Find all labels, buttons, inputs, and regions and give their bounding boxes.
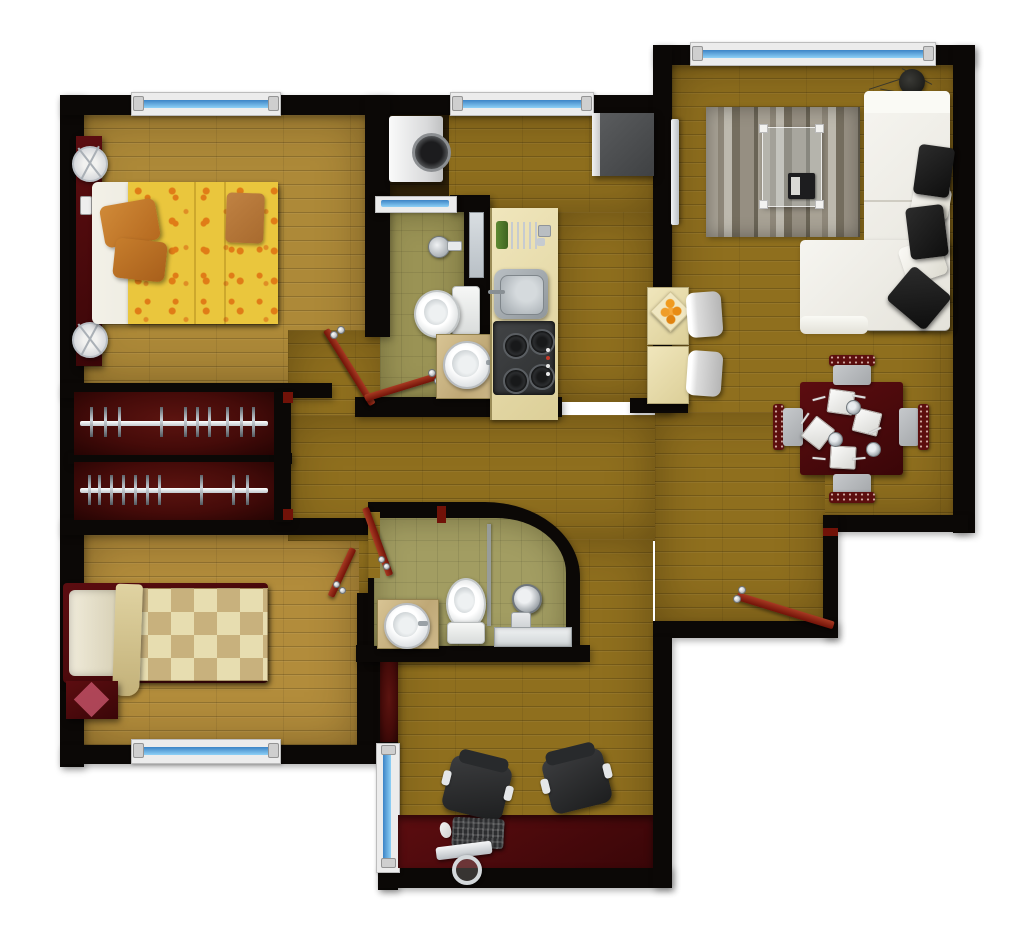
wall-office-right: [653, 637, 672, 888]
clothes-hanger: [88, 475, 91, 505]
window-bracket: [268, 96, 279, 111]
kitchen-east-floor: [556, 212, 653, 402]
stove-knob: [546, 348, 550, 352]
closet2-rail: [80, 488, 268, 493]
bathroom2-toilet-tank: [447, 622, 485, 644]
door-jamb: [283, 509, 293, 520]
clothes-hanger: [90, 407, 93, 437]
dining-chair-back: [918, 404, 929, 450]
drinking-glass: [866, 442, 881, 457]
floorplan-canvas: [0, 0, 1024, 926]
clothes-hanger: [110, 475, 113, 505]
refrigerator-edge: [592, 113, 600, 176]
clothes-hanger: [122, 475, 125, 505]
door-handle: [733, 595, 741, 603]
laundry-window-glass: [458, 100, 584, 108]
clothes-hanger: [98, 475, 101, 505]
wall-master-right: [365, 95, 390, 337]
bar-stool: [685, 350, 723, 397]
clothes-hanger: [232, 475, 235, 505]
second-bedroom-window-glass: [139, 747, 271, 755]
blanket-drape: [112, 584, 143, 697]
clothes-hanger: [146, 475, 149, 505]
clothes-hanger: [134, 475, 137, 505]
wall-closet-bottom: [60, 518, 380, 535]
clothes-hanger: [118, 407, 121, 437]
table-corner-pad: [815, 124, 824, 133]
toilet-bowl-inner: [424, 299, 448, 325]
clothes-hanger: [160, 407, 163, 437]
dining-chair-back: [829, 492, 875, 503]
stove-knob: [546, 372, 550, 376]
bathroom2-basin-inner: [393, 612, 418, 637]
wall-outer-right: [953, 45, 975, 533]
office-window-glass: [383, 751, 391, 864]
comforter-seam: [194, 182, 196, 324]
window-bracket: [133, 96, 144, 111]
dish-rack-plates: [511, 222, 537, 249]
clothes-hanger: [252, 407, 255, 437]
magazine-page: [791, 177, 800, 195]
dish-rack-cup: [538, 225, 551, 237]
wall-step-horizontal: [823, 515, 968, 532]
stove-burner: [529, 364, 555, 390]
window-bracket: [381, 858, 396, 868]
orange-pillow: [112, 237, 168, 282]
door-handle: [738, 586, 746, 594]
phone: [80, 196, 92, 215]
bar-stool: [685, 291, 723, 338]
wall-office-bottom: [378, 866, 672, 888]
sofa-armrest: [800, 316, 868, 334]
clothes-hanger: [158, 475, 161, 505]
window-bracket: [923, 46, 934, 61]
door-handle: [337, 326, 345, 334]
bedside-lamp: [72, 322, 108, 358]
window-bracket: [581, 96, 592, 111]
kitchen-faucet: [488, 290, 505, 294]
living-room-window-glass: [699, 50, 925, 58]
stove-burner: [529, 329, 555, 355]
black-cushion: [913, 144, 956, 199]
folded-blanket: [225, 192, 265, 243]
stove-knob: [546, 356, 550, 360]
bathroom1-mirror: [469, 212, 484, 278]
clothes-hanger: [208, 407, 211, 437]
clothes-hanger: [246, 475, 249, 505]
dish-rack-cup: [537, 238, 545, 246]
monitor-stand-base: [452, 855, 482, 885]
hand-shower-head: [512, 584, 542, 614]
shower-tray: [494, 627, 572, 647]
single-bed-checkered-comforter: [124, 588, 268, 681]
window-bracket: [268, 743, 279, 758]
dining-chair-seat: [833, 365, 871, 385]
door-jamb: [437, 506, 446, 523]
door-handle: [428, 369, 436, 377]
shower-arm: [447, 241, 462, 251]
black-cushion: [905, 204, 949, 260]
window-bracket: [133, 743, 144, 758]
bathroom1-basin-inner: [452, 350, 479, 377]
door-jamb: [283, 392, 293, 403]
table-corner-pad: [759, 200, 768, 209]
bar-table: [647, 346, 689, 404]
office-left-red-panel: [380, 662, 398, 742]
office-desk: [398, 815, 653, 868]
door-handle: [333, 581, 340, 588]
clothes-hanger: [200, 475, 203, 505]
wall-entry-bottom: [653, 621, 838, 638]
dining-chair-seat: [783, 408, 803, 446]
dining-chair-seat: [833, 474, 871, 494]
door-jamb: [823, 528, 838, 536]
master-bedroom-window-glass: [139, 100, 271, 108]
stove-burner: [503, 368, 529, 394]
window-bracket: [692, 46, 703, 61]
sofa-backrest-top: [864, 91, 950, 113]
stove-burner: [503, 333, 529, 359]
window-bracket: [381, 745, 396, 755]
table-corner-pad: [815, 200, 824, 209]
bathroom2-toilet-inner: [454, 587, 475, 613]
clothes-hanger: [184, 407, 187, 437]
glass-partition: [487, 524, 491, 626]
door-handle: [378, 556, 385, 563]
drinking-glass: [846, 400, 861, 415]
bathroom2-faucet: [418, 621, 428, 626]
bedside-lamp: [72, 146, 108, 182]
dish-rack-tray: [496, 221, 508, 249]
refrigerator: [592, 113, 654, 176]
stove-knob: [546, 364, 550, 368]
kitchen-sink-basin: [500, 275, 544, 315]
wall-tv: [671, 119, 679, 225]
clothes-hanger: [104, 407, 107, 437]
door-handle: [339, 587, 346, 594]
clothes-hanger: [226, 407, 229, 437]
bathroom1-window-glass: [381, 200, 449, 207]
drinking-glass: [828, 432, 843, 447]
clothes-hanger: [196, 407, 199, 437]
clothes-hanger: [240, 407, 243, 437]
dining-chair-seat: [899, 408, 919, 446]
window-bracket: [452, 96, 463, 111]
washer-drum-door: [412, 133, 451, 172]
door-handle: [383, 563, 390, 570]
table-corner-pad: [759, 124, 768, 133]
wall-closet-right: [274, 392, 291, 522]
